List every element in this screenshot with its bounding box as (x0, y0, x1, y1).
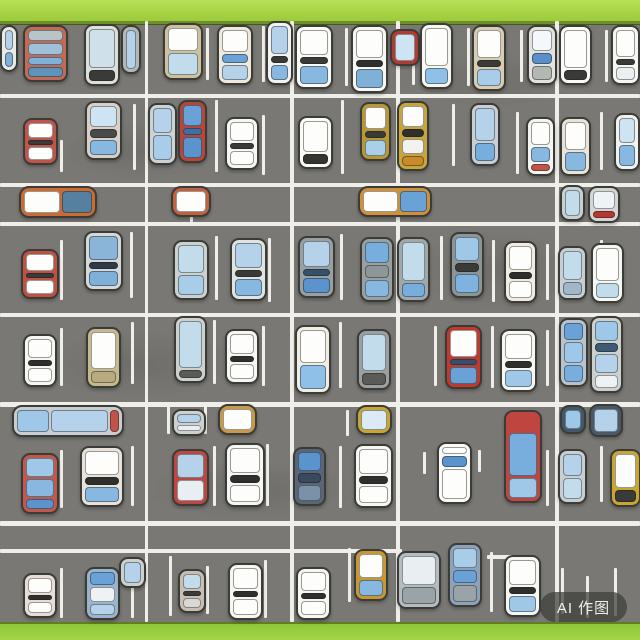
stall-divider-dash (268, 238, 271, 302)
parked-car (86, 327, 121, 388)
car-window-pane (594, 409, 618, 432)
car-window-pane (402, 242, 425, 281)
parked-car (266, 21, 293, 85)
parked-car (178, 569, 206, 613)
car-window-pane (563, 478, 582, 499)
stall-divider-dash (492, 240, 495, 302)
car-window-pane (505, 361, 532, 368)
car-window-pane (362, 334, 386, 371)
parked-car (172, 449, 209, 506)
parked-car (590, 316, 623, 393)
stall-divider-dash (345, 28, 348, 86)
car-window-pane (230, 151, 254, 165)
car-window-pane (177, 425, 201, 431)
parked-car (360, 102, 391, 161)
car-window-pane (17, 410, 49, 432)
lane-line-horizontal (0, 549, 402, 553)
parked-car (504, 555, 541, 617)
stall-divider-dash (452, 104, 455, 166)
parked-car (560, 185, 585, 221)
car-window-pane (509, 596, 536, 612)
parked-car (356, 405, 392, 435)
parked-car (21, 453, 59, 514)
car-window-pane (153, 135, 172, 160)
car-window-pane (303, 269, 330, 276)
car-window-pane (90, 140, 117, 155)
car-window-pane (24, 191, 60, 213)
parked-car (420, 23, 453, 89)
car-window-pane (5, 52, 13, 67)
stall-divider-dash (167, 406, 170, 434)
car-window-pane (89, 262, 118, 269)
car-window-pane (235, 270, 262, 277)
car-window-pane (453, 570, 477, 583)
parked-car (225, 117, 259, 170)
car-window-pane (564, 323, 583, 340)
car-window-pane (616, 59, 635, 66)
car-window-pane (402, 106, 424, 127)
stall-divider-dash (546, 450, 549, 506)
stall-divider-dash (340, 234, 343, 300)
car-window-pane (85, 477, 119, 484)
car-window-pane (110, 410, 119, 432)
car-window-pane (28, 57, 63, 65)
parked-car (559, 25, 592, 85)
car-window-pane (28, 67, 63, 77)
car-window-pane (51, 410, 108, 432)
stall-divider-dash (131, 322, 134, 384)
car-window-pane (177, 414, 201, 423)
car-window-pane (564, 70, 587, 80)
car-window-pane (28, 147, 53, 160)
parked-car (589, 404, 623, 437)
car-window-pane (230, 122, 254, 141)
parked-car (445, 325, 482, 389)
grass-strip-top (0, 0, 640, 24)
car-window-pane (89, 70, 115, 81)
car-window-pane (616, 67, 635, 80)
stall-divider-dash (266, 444, 269, 506)
car-window-pane (183, 598, 201, 608)
car-window-pane (28, 368, 52, 382)
parked-car (448, 543, 482, 607)
car-window-pane (230, 143, 254, 149)
car-window-pane (477, 30, 501, 58)
parked-car (23, 334, 57, 387)
stall-divider-dash (206, 566, 209, 614)
car-window-pane (595, 354, 618, 373)
stall-divider-dash (215, 100, 218, 172)
stall-divider-dash (546, 330, 549, 386)
car-window-pane (168, 53, 198, 75)
car-window-pane (26, 458, 54, 477)
lane-line-vertical (555, 21, 559, 622)
stall-divider-dash (264, 560, 267, 618)
stall-divider-dash (213, 446, 216, 506)
car-window-pane (222, 65, 248, 80)
car-window-pane (455, 263, 479, 272)
car-window-pane (565, 122, 586, 150)
parking-lot-scene: AI 作图 (0, 0, 640, 640)
car-window-pane (179, 321, 202, 368)
car-window-pane (28, 578, 52, 593)
car-window-pane (475, 143, 495, 161)
car-window-pane (230, 448, 260, 473)
parked-car (558, 449, 587, 504)
car-window-pane (359, 486, 388, 503)
car-window-pane (565, 152, 586, 171)
parked-car (19, 186, 97, 218)
stall-divider-dash (262, 115, 265, 175)
car-window-pane (222, 54, 248, 63)
car-window-pane (176, 191, 206, 212)
car-window-pane (615, 490, 636, 502)
car-window-pane (26, 479, 54, 497)
car-window-pane (563, 251, 582, 280)
parked-car (397, 101, 429, 171)
car-window-pane (28, 595, 52, 600)
car-window-pane (563, 454, 582, 476)
parked-car (173, 240, 209, 300)
stall-divider-dash (341, 100, 344, 174)
car-window-pane (563, 282, 582, 295)
car-window-pane (477, 60, 501, 67)
car-window-pane (619, 145, 635, 166)
asphalt-stain (40, 330, 240, 400)
parked-car (217, 25, 253, 85)
stall-divider-dash (520, 30, 523, 82)
lane-line-horizontal (0, 222, 640, 226)
stall-divider-dash (130, 232, 133, 298)
car-window-pane (235, 279, 262, 296)
car-window-pane (505, 370, 532, 387)
car-window-pane (90, 604, 115, 615)
car-window-pane (303, 121, 328, 152)
car-window-pane (509, 433, 537, 476)
car-window-pane (475, 108, 495, 141)
parked-car (558, 246, 587, 300)
lane-line-horizontal (0, 313, 640, 317)
car-window-pane (365, 107, 386, 129)
car-window-pane (453, 548, 477, 568)
car-window-pane (564, 342, 583, 362)
car-window-pane (442, 447, 467, 454)
parked-car (171, 186, 211, 217)
parked-car (148, 103, 177, 165)
parked-car (360, 237, 394, 302)
car-window-pane (28, 360, 52, 366)
parked-car (84, 24, 120, 86)
car-window-pane (450, 330, 477, 357)
car-window-pane (91, 332, 116, 369)
car-window-pane (26, 273, 54, 278)
car-window-pane (230, 356, 254, 362)
car-window-pane (442, 469, 467, 499)
car-window-pane (300, 57, 328, 64)
car-window-pane (395, 34, 415, 61)
parked-car (23, 573, 57, 618)
car-window-pane (365, 131, 386, 138)
parked-car (559, 318, 588, 387)
parked-car (21, 249, 59, 299)
car-window-pane (28, 602, 52, 613)
stall-divider-dash (169, 556, 172, 616)
car-window-pane (531, 147, 550, 162)
stall-divider-dash (440, 236, 443, 300)
car-window-pane (450, 367, 477, 384)
car-window-pane (300, 30, 328, 55)
grass-strip-bottom (0, 622, 640, 640)
stall-divider-dash (339, 322, 342, 388)
stall-divider-dash (348, 548, 351, 602)
car-window-pane (565, 410, 581, 429)
parked-car (0, 25, 18, 72)
parked-car (85, 567, 120, 620)
car-window-pane (477, 69, 501, 86)
car-window-pane (615, 454, 636, 488)
car-window-pane (230, 485, 260, 502)
car-window-pane (89, 236, 118, 260)
car-window-pane (85, 451, 119, 475)
car-window-pane (230, 475, 260, 483)
car-window-pane (303, 241, 330, 267)
car-window-pane (596, 283, 619, 298)
car-window-pane (223, 409, 252, 430)
car-window-pane (5, 30, 13, 50)
car-window-pane (425, 28, 448, 66)
parked-car (293, 447, 326, 506)
ai-watermark-text: AI 作图 (557, 597, 610, 618)
lane-line-vertical (290, 21, 294, 622)
car-window-pane (183, 128, 202, 136)
parked-car (390, 29, 420, 66)
stall-divider-dash (491, 326, 494, 388)
car-window-pane (62, 191, 92, 213)
car-window-pane (28, 339, 52, 358)
parked-car (591, 243, 624, 303)
parked-car (295, 325, 331, 394)
car-window-pane (359, 554, 383, 578)
parked-car (296, 567, 331, 620)
car-window-pane (301, 572, 326, 591)
car-window-pane (233, 568, 258, 589)
stall-divider-dash (60, 328, 63, 386)
car-window-pane (595, 321, 618, 341)
car-window-pane (402, 129, 424, 137)
parked-car (500, 329, 537, 392)
parked-car (225, 329, 259, 384)
parked-car (174, 316, 207, 383)
car-window-pane (271, 56, 288, 63)
car-window-pane (300, 66, 328, 84)
car-window-pane (402, 139, 424, 155)
car-window-pane (359, 449, 388, 474)
car-window-pane (183, 105, 202, 126)
parked-car (614, 113, 640, 171)
parked-car (397, 237, 430, 302)
car-window-pane (359, 580, 383, 596)
car-window-pane (509, 281, 532, 298)
parked-car (354, 444, 393, 508)
parked-car (526, 117, 555, 176)
stall-divider-dash (516, 112, 519, 174)
parked-car (610, 449, 640, 507)
parked-car (588, 186, 620, 223)
parked-car (178, 100, 207, 163)
stall-divider-dash (434, 326, 437, 386)
car-window-pane (179, 370, 202, 378)
car-window-pane (183, 574, 201, 589)
car-window-pane (183, 137, 202, 158)
car-window-pane (298, 452, 321, 471)
car-window-pane (168, 28, 198, 51)
car-window-pane (442, 456, 467, 467)
parked-car (218, 404, 257, 435)
parked-car (351, 25, 388, 93)
parked-car (12, 405, 124, 437)
parked-car (23, 118, 58, 165)
parked-car (560, 405, 586, 434)
parked-car (225, 443, 265, 507)
car-window-pane (365, 242, 389, 263)
car-window-pane (505, 334, 532, 359)
car-window-pane (356, 60, 383, 67)
car-window-pane (300, 365, 326, 389)
car-window-pane (356, 30, 383, 58)
car-window-pane (28, 140, 53, 145)
stall-divider-dash (60, 140, 63, 172)
car-window-pane (596, 248, 619, 281)
parked-car (119, 557, 146, 588)
car-window-pane (359, 476, 388, 484)
car-window-pane (532, 30, 552, 51)
stall-divider-dash (60, 450, 63, 508)
parked-car (85, 101, 122, 160)
car-window-pane (532, 53, 552, 64)
parked-car (230, 238, 267, 301)
car-window-pane (28, 30, 63, 41)
car-window-pane (564, 30, 587, 68)
stall-divider-dash (60, 240, 63, 300)
car-window-pane (303, 278, 330, 293)
car-window-pane (301, 593, 326, 599)
car-window-pane (531, 164, 550, 171)
parked-car (23, 25, 68, 82)
car-window-pane (90, 129, 117, 139)
car-window-pane (453, 585, 477, 602)
parked-car (611, 25, 640, 85)
car-window-pane (90, 106, 117, 127)
car-window-pane (303, 154, 328, 164)
parked-car (357, 329, 391, 390)
parked-car (228, 563, 263, 620)
car-window-pane (593, 191, 615, 209)
car-window-pane (509, 478, 537, 498)
car-window-pane (28, 43, 63, 55)
parked-car (470, 103, 500, 166)
parked-car (163, 23, 203, 80)
stall-divider-dash (339, 446, 342, 508)
lane-line-horizontal (0, 94, 640, 98)
parked-car (504, 241, 537, 303)
car-window-pane (402, 156, 424, 166)
stall-divider-dash (60, 568, 63, 618)
stall-divider-dash (605, 30, 608, 82)
stall-divider-dash (262, 26, 265, 82)
car-window-pane (402, 283, 425, 297)
car-window-pane (271, 26, 288, 54)
car-window-pane (425, 68, 448, 84)
car-window-pane (531, 122, 550, 145)
parked-car (358, 186, 432, 217)
car-window-pane (298, 485, 321, 501)
parked-car (298, 236, 335, 298)
stall-divider-dash (423, 452, 426, 474)
car-window-pane (124, 562, 141, 583)
parked-car (437, 442, 472, 504)
lane-line-horizontal (0, 521, 640, 526)
car-window-pane (356, 69, 383, 88)
parked-car (450, 232, 484, 298)
stall-divider-dash (600, 112, 603, 170)
car-window-pane (222, 30, 248, 52)
car-window-pane (365, 140, 386, 156)
car-window-pane (26, 280, 54, 294)
stall-divider-dash (215, 236, 218, 300)
car-window-pane (402, 587, 436, 604)
parked-car (354, 549, 388, 601)
car-window-pane (89, 271, 118, 286)
car-window-pane (365, 280, 389, 297)
lane-line-horizontal (0, 183, 640, 187)
ai-watermark-badge: AI 作图 (540, 592, 627, 622)
car-window-pane (85, 487, 119, 502)
car-window-pane (509, 246, 532, 270)
car-window-pane (450, 359, 477, 365)
parked-car (84, 231, 123, 291)
car-window-pane (595, 343, 618, 351)
car-window-pane (509, 587, 536, 594)
parked-car (172, 409, 206, 436)
car-window-pane (183, 591, 201, 597)
car-window-pane (362, 373, 386, 385)
car-window-pane (178, 275, 204, 295)
car-window-pane (89, 29, 115, 68)
car-window-pane (230, 364, 254, 379)
parked-car (504, 410, 542, 503)
car-window-pane (28, 123, 53, 138)
stall-divider-dash (490, 552, 493, 612)
car-window-pane (178, 245, 204, 273)
car-window-pane (509, 415, 537, 431)
car-window-pane (26, 254, 54, 271)
car-window-pane (177, 454, 204, 478)
car-window-pane (365, 265, 389, 279)
car-window-pane (593, 211, 615, 218)
car-window-pane (300, 330, 326, 363)
stall-divider-dash (467, 28, 470, 86)
car-window-pane (616, 30, 635, 57)
car-window-pane (233, 591, 258, 597)
car-window-pane (233, 599, 258, 615)
car-window-pane (26, 499, 54, 509)
stall-divider-dash (600, 446, 603, 502)
stall-divider-dash (346, 410, 349, 436)
stall-divider-dash (262, 326, 265, 386)
parked-car (472, 25, 506, 91)
car-window-pane (177, 480, 204, 501)
car-window-pane (153, 108, 172, 133)
